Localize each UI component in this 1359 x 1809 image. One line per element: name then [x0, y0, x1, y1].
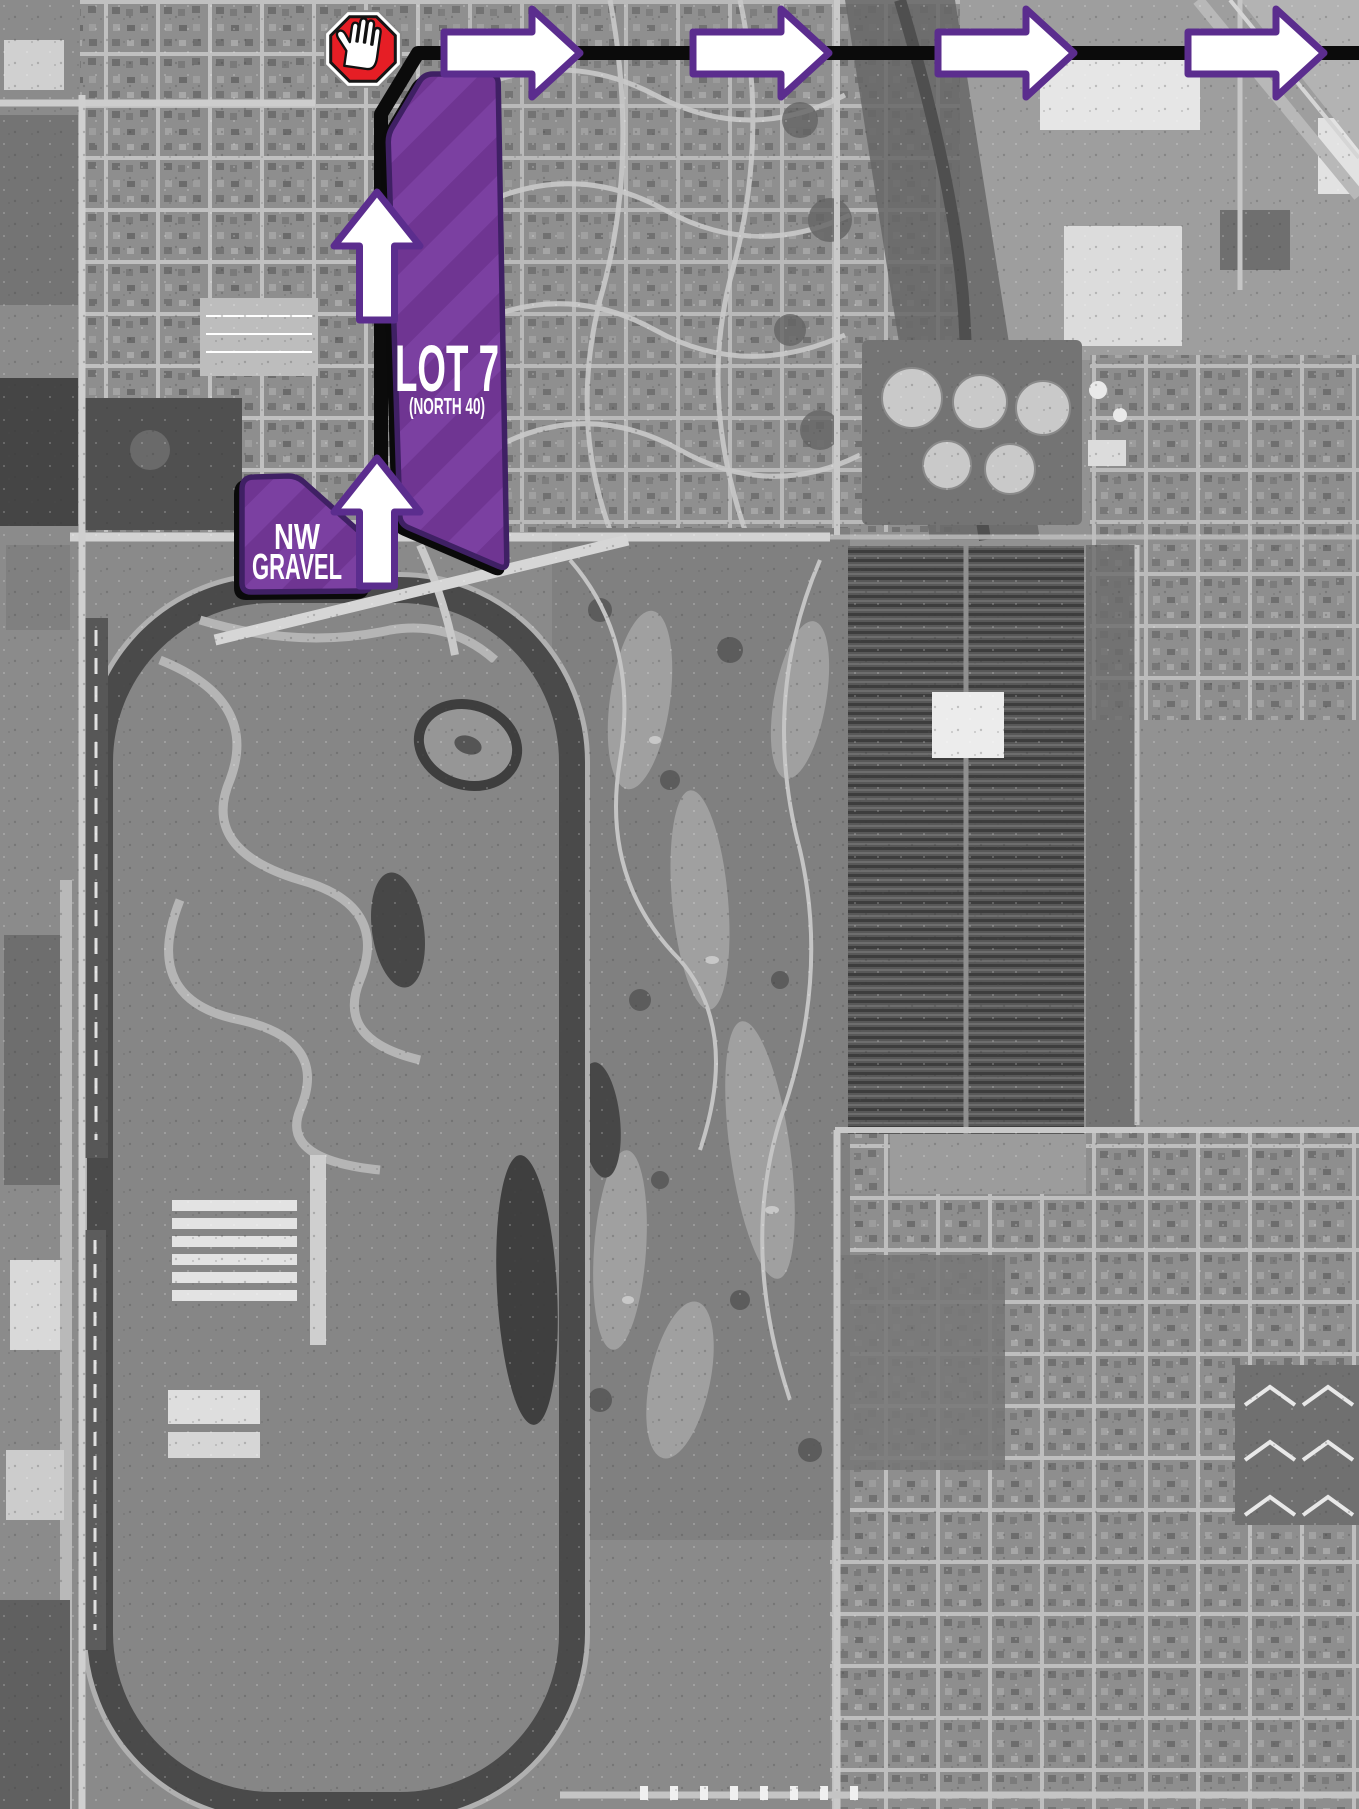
lot7-sublabel: (NORTH 40): [409, 393, 485, 419]
stop-hand-icon: [325, 11, 401, 87]
parking-route-map: NW GRAVEL LOT 7 (NORTH 40): [0, 0, 1359, 1809]
satellite-basemap: [0, 0, 1359, 1809]
map-noise: [0, 0, 1359, 1809]
nw-gravel-label-line2: GRAVEL: [252, 546, 342, 587]
